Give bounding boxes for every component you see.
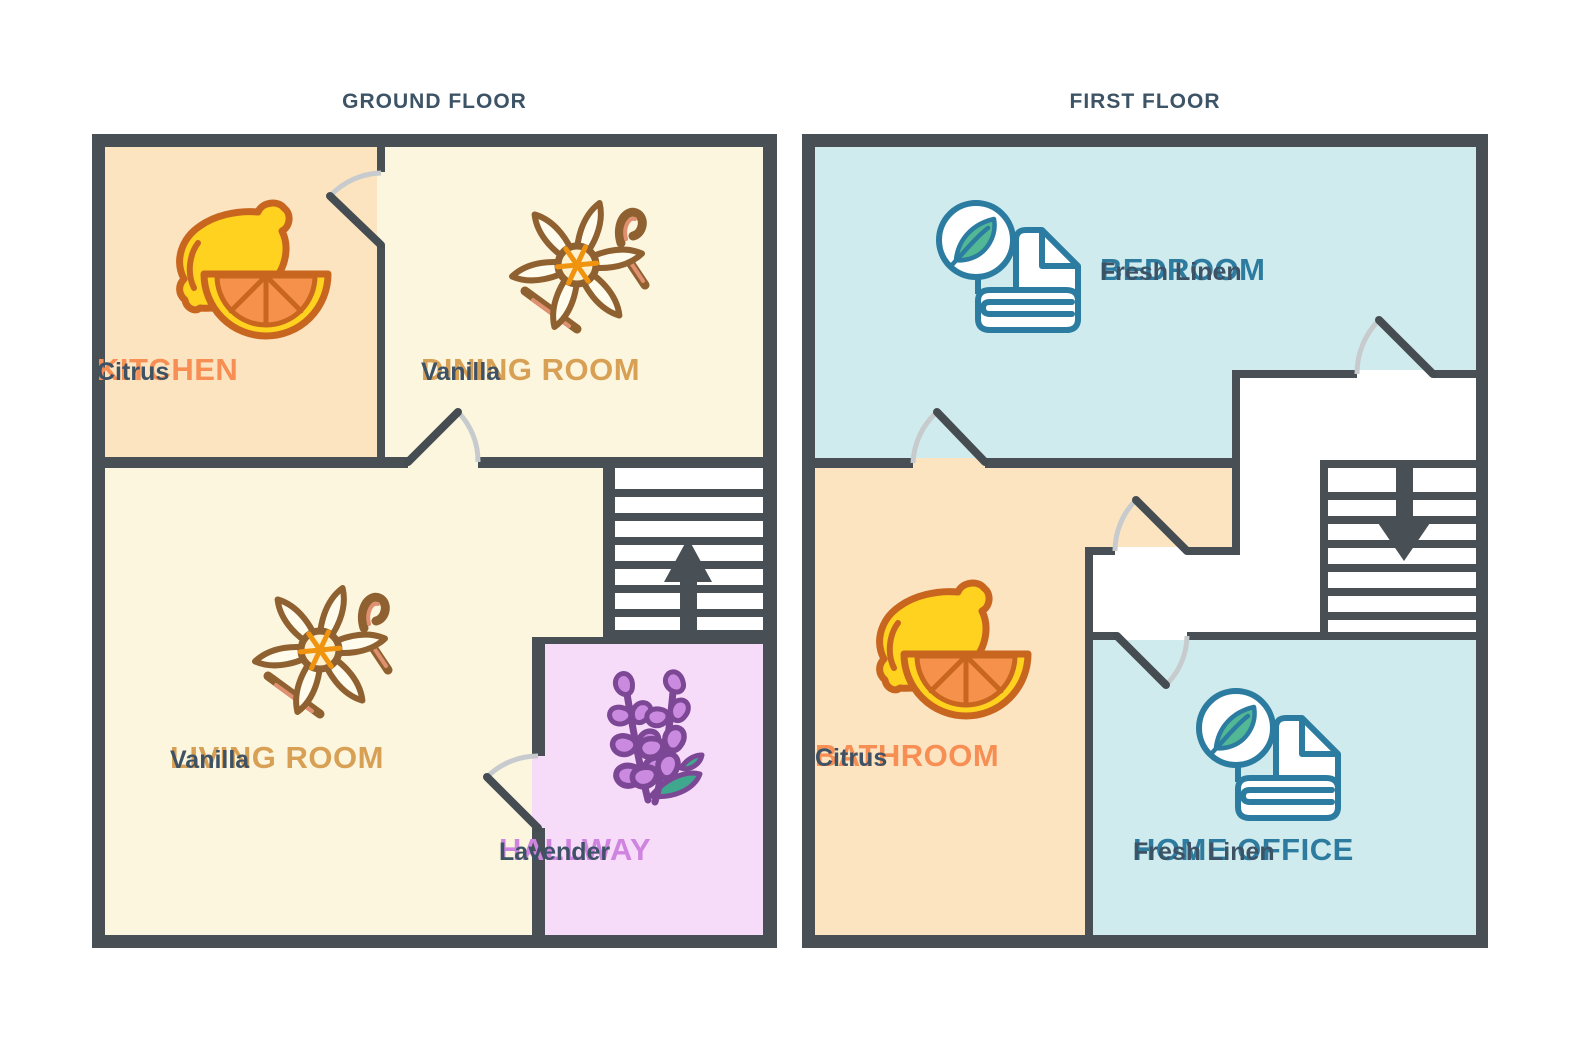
door-opening-dining-living <box>408 457 478 468</box>
lavender-sprigs-icon <box>593 672 710 812</box>
hallway-scent: Lavender <box>499 838 610 867</box>
kitchen-scent: Citrus <box>97 358 169 387</box>
stair-tread <box>1328 588 1476 596</box>
bedroom-scent: Fresh Linen <box>1100 258 1242 287</box>
bathroom-scent: Citrus <box>815 744 887 773</box>
ground-floor-plan: KITCHEN Citrus DINING ROOM Vanilla LIVIN… <box>92 134 777 948</box>
door-opening-bedroom <box>913 458 985 468</box>
ground-floor-title: GROUND FLOOR <box>92 90 777 114</box>
fresh-linen-icon <box>938 202 1085 337</box>
stairs-up-arrow-head <box>664 538 712 582</box>
door-opening-landing <box>1357 370 1433 378</box>
door-opening-bathroom <box>1115 547 1187 555</box>
door-opening-office <box>1117 632 1187 640</box>
vanilla-flower-icon <box>248 578 392 722</box>
room-bathroom-upper <box>815 468 1232 547</box>
landing-side <box>1240 378 1320 632</box>
stairs-down-arrow-icon <box>1396 464 1413 523</box>
stair-tread <box>615 513 763 521</box>
stairs-up-arrow-icon <box>680 580 697 644</box>
door-opening-hallway <box>532 756 545 828</box>
office-scent: Fresh Linen <box>1133 838 1275 867</box>
citrus-lemon-icon <box>173 198 345 340</box>
landing-notch <box>1093 555 1240 632</box>
door-opening-kitchen <box>377 172 385 245</box>
stair-tread <box>1328 612 1476 620</box>
first-floor-plan: BEDROOM Fresh Linen BATHROOM Citrus HOME… <box>802 134 1488 948</box>
stair-tread <box>615 489 763 497</box>
citrus-lemon-icon <box>873 578 1045 720</box>
dining-scent: Vanilla <box>421 358 500 387</box>
living-scent: Vanilla <box>170 746 249 775</box>
first-floor-title: FIRST FLOOR <box>802 90 1488 114</box>
vanilla-flower-icon <box>505 193 649 337</box>
stairs-down-arrow-head <box>1378 523 1430 561</box>
stair-tread <box>1328 564 1476 572</box>
scent-floor-plan: GROUND FLOOR FIRST FLOOR <box>0 0 1580 1040</box>
fresh-linen-icon <box>1198 690 1345 825</box>
